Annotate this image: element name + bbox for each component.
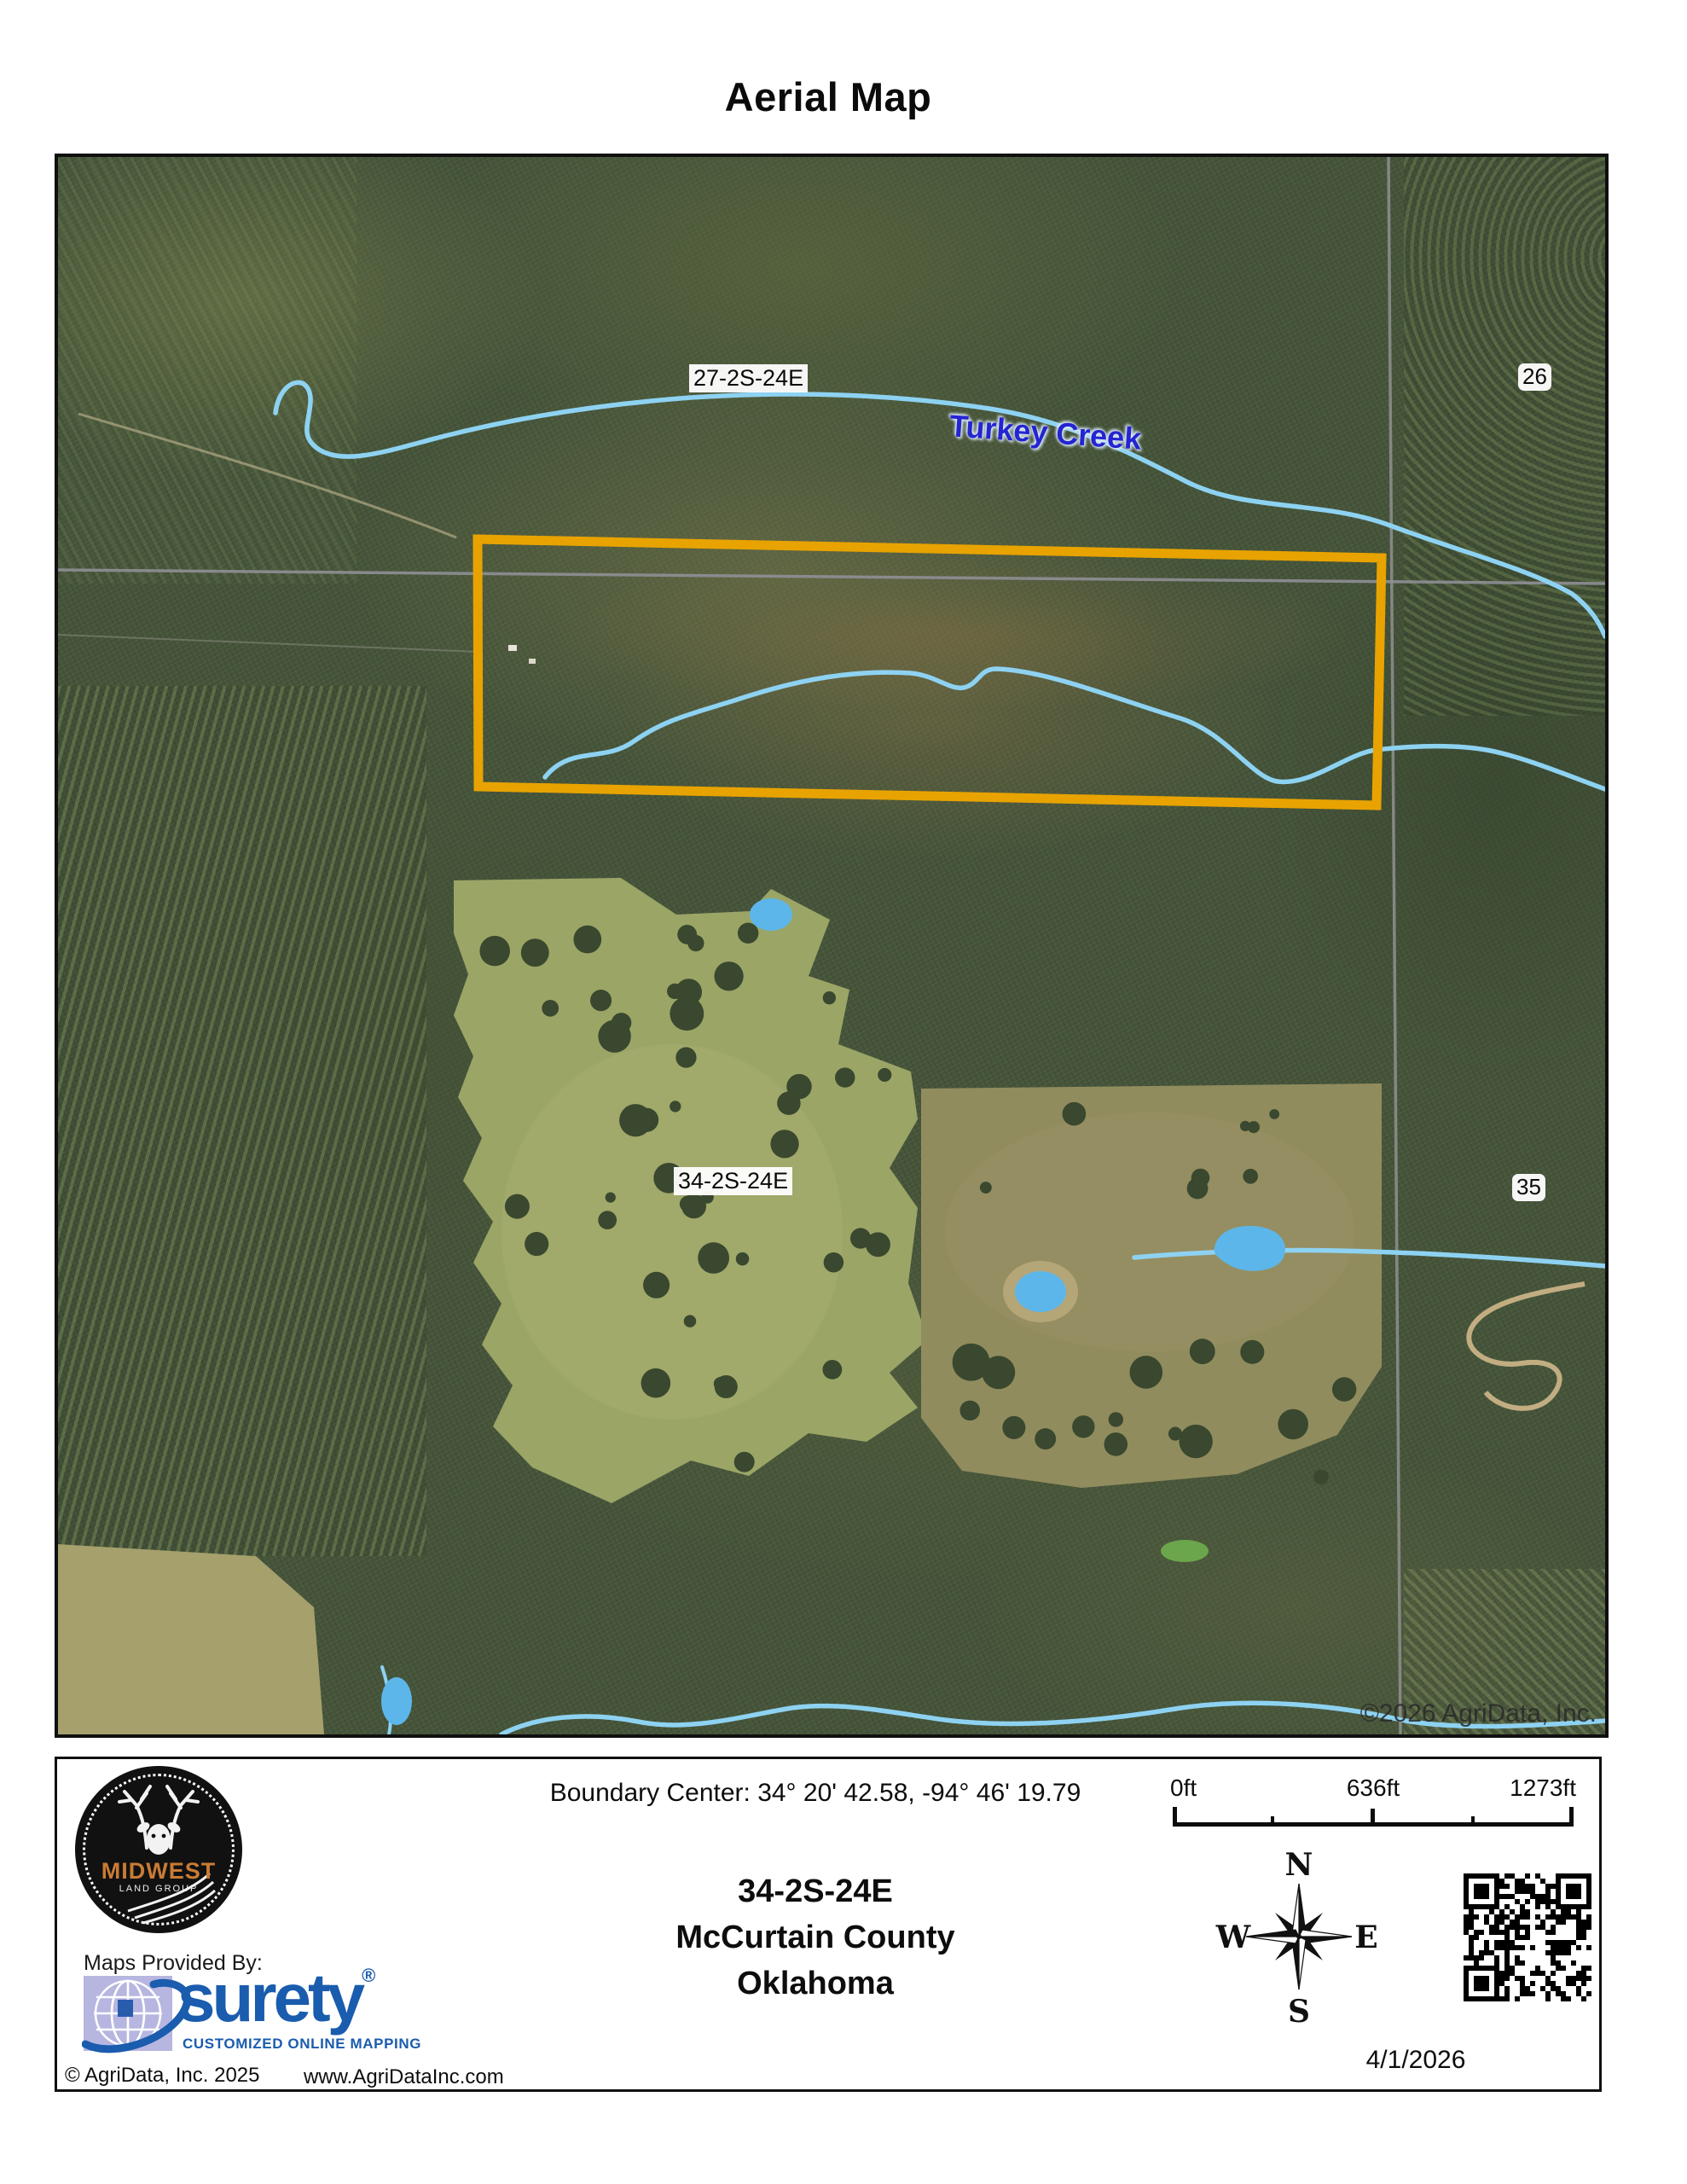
tree: [606, 1192, 616, 1202]
tree: [573, 926, 601, 954]
tree: [1191, 1169, 1210, 1188]
tree: [619, 1104, 652, 1136]
forest-road: [78, 414, 456, 537]
tree: [590, 990, 612, 1011]
field-road: [58, 635, 478, 652]
map-date: 4/1/2026: [1322, 2046, 1510, 2075]
building: [508, 645, 517, 651]
tree: [714, 1377, 728, 1391]
boundary-creek: [545, 669, 1605, 789]
bottomleft-pasture: [58, 1544, 324, 1734]
tree: [479, 936, 510, 967]
tree: [770, 1130, 798, 1158]
tree: [980, 1182, 992, 1194]
tree: [734, 1452, 755, 1472]
aerial-map-page: Aerial Map: [0, 0, 1687, 2184]
tree: [1243, 1169, 1258, 1184]
compass-north: N: [1285, 1847, 1313, 1883]
tree: [675, 979, 702, 1005]
tree: [1278, 1409, 1308, 1440]
qr-code: [1464, 1873, 1591, 2001]
section-label-34: 34-2S-24E: [674, 1167, 792, 1195]
tree: [959, 1401, 980, 1421]
tree: [866, 1232, 890, 1257]
scale-tick: [1471, 1816, 1475, 1827]
tree: [598, 1019, 630, 1052]
scale-label-mid: 636ft: [1313, 1774, 1433, 1802]
scale-tick: [1371, 1809, 1375, 1827]
surety-tagline: CUSTOMIZED ONLINE MAPPING: [183, 2036, 421, 2053]
building: [529, 659, 536, 664]
logo-sub-text: LAND GROUP: [75, 1884, 242, 1894]
tree: [643, 1272, 670, 1298]
tree: [505, 1194, 530, 1219]
tree: [542, 1000, 559, 1017]
tree: [1063, 1102, 1087, 1126]
tree: [684, 1315, 696, 1327]
deer-icon: [75, 1766, 242, 1933]
tree: [670, 1101, 681, 1112]
tree: [835, 1067, 855, 1087]
section-label-27: 27-2S-24E: [689, 364, 808, 392]
tree: [641, 1368, 671, 1398]
tree: [736, 1252, 750, 1266]
tree: [982, 1356, 1015, 1389]
scale-label-end: 1273ft: [1474, 1774, 1576, 1802]
tree: [525, 1232, 548, 1256]
map-features-layer: [58, 157, 1605, 1734]
map-watermark: ©2026 AgriData, Inc.: [1360, 1699, 1597, 1728]
tree: [1190, 1339, 1215, 1364]
tree: [738, 923, 758, 944]
tree: [1104, 1432, 1128, 1456]
tree: [823, 991, 836, 1004]
surety-brand-text: surety: [177, 1960, 362, 2036]
compass-east: E: [1354, 1920, 1377, 1955]
pond: [1015, 1271, 1066, 1312]
scale-tick: [1569, 1807, 1574, 1827]
green-field-patch: [1161, 1540, 1209, 1562]
tree: [1269, 1109, 1279, 1119]
scale-tick: [1271, 1816, 1274, 1827]
tree: [1240, 1340, 1264, 1364]
dirt-road: [1469, 1284, 1585, 1409]
location-county: McCurtain County: [346, 1920, 1284, 1956]
midwest-land-group-logo: MIDWEST LAND GROUP: [75, 1766, 242, 1933]
section-line-horizontal: [58, 570, 1605, 584]
tree: [1179, 1425, 1212, 1458]
tree: [1168, 1426, 1182, 1440]
tree: [1035, 1428, 1056, 1449]
tree: [677, 925, 697, 944]
page-title: Aerial Map: [55, 73, 1602, 120]
tree: [680, 1195, 697, 1212]
tree: [598, 1211, 617, 1229]
agridata-website: www.AgriDataInc.com: [304, 2065, 504, 2089]
tree: [1109, 1412, 1123, 1426]
scale-tick: [1173, 1807, 1177, 1827]
tree: [1129, 1356, 1162, 1389]
tree: [698, 1242, 729, 1274]
tree: [1332, 1377, 1356, 1401]
tree: [521, 938, 549, 967]
tree: [1313, 1470, 1328, 1484]
boundary-center-text: Boundary Center: 34° 20' 42.58, -94° 46'…: [261, 1779, 1370, 1808]
compass-west: W: [1215, 1920, 1251, 1955]
aerial-map: 27-2S-24E 26 Turkey Creek 34-2S-24E 35 ©…: [58, 157, 1605, 1734]
tree: [777, 1091, 800, 1114]
location-state: Oklahoma: [346, 1966, 1284, 2002]
tree: [675, 1047, 696, 1067]
tree: [1072, 1415, 1094, 1438]
scale-label-start: 0ft: [1170, 1774, 1197, 1802]
tree: [824, 1252, 844, 1273]
tree: [878, 1068, 891, 1082]
section-line-vertical: [1388, 157, 1400, 1734]
tree: [714, 961, 743, 990]
pond: [381, 1677, 412, 1725]
section-label-35: 35: [1512, 1174, 1545, 1201]
agridata-copyright: © AgriData, Inc. 2025: [65, 2064, 259, 2088]
compass-south: S: [1288, 1994, 1310, 2026]
logo-brand-text: MIDWEST: [75, 1858, 242, 1885]
compass-rose-icon: N S W E: [1209, 1843, 1388, 2026]
tree: [1002, 1416, 1025, 1439]
tree: [822, 1360, 842, 1380]
location-section: 34-2S-24E: [346, 1873, 1284, 1910]
map-frame: 27-2S-24E 26 Turkey Creek 34-2S-24E 35 ©…: [55, 154, 1609, 1738]
section-label-26: 26: [1518, 363, 1551, 391]
tree: [1248, 1121, 1260, 1133]
pond: [750, 898, 792, 931]
